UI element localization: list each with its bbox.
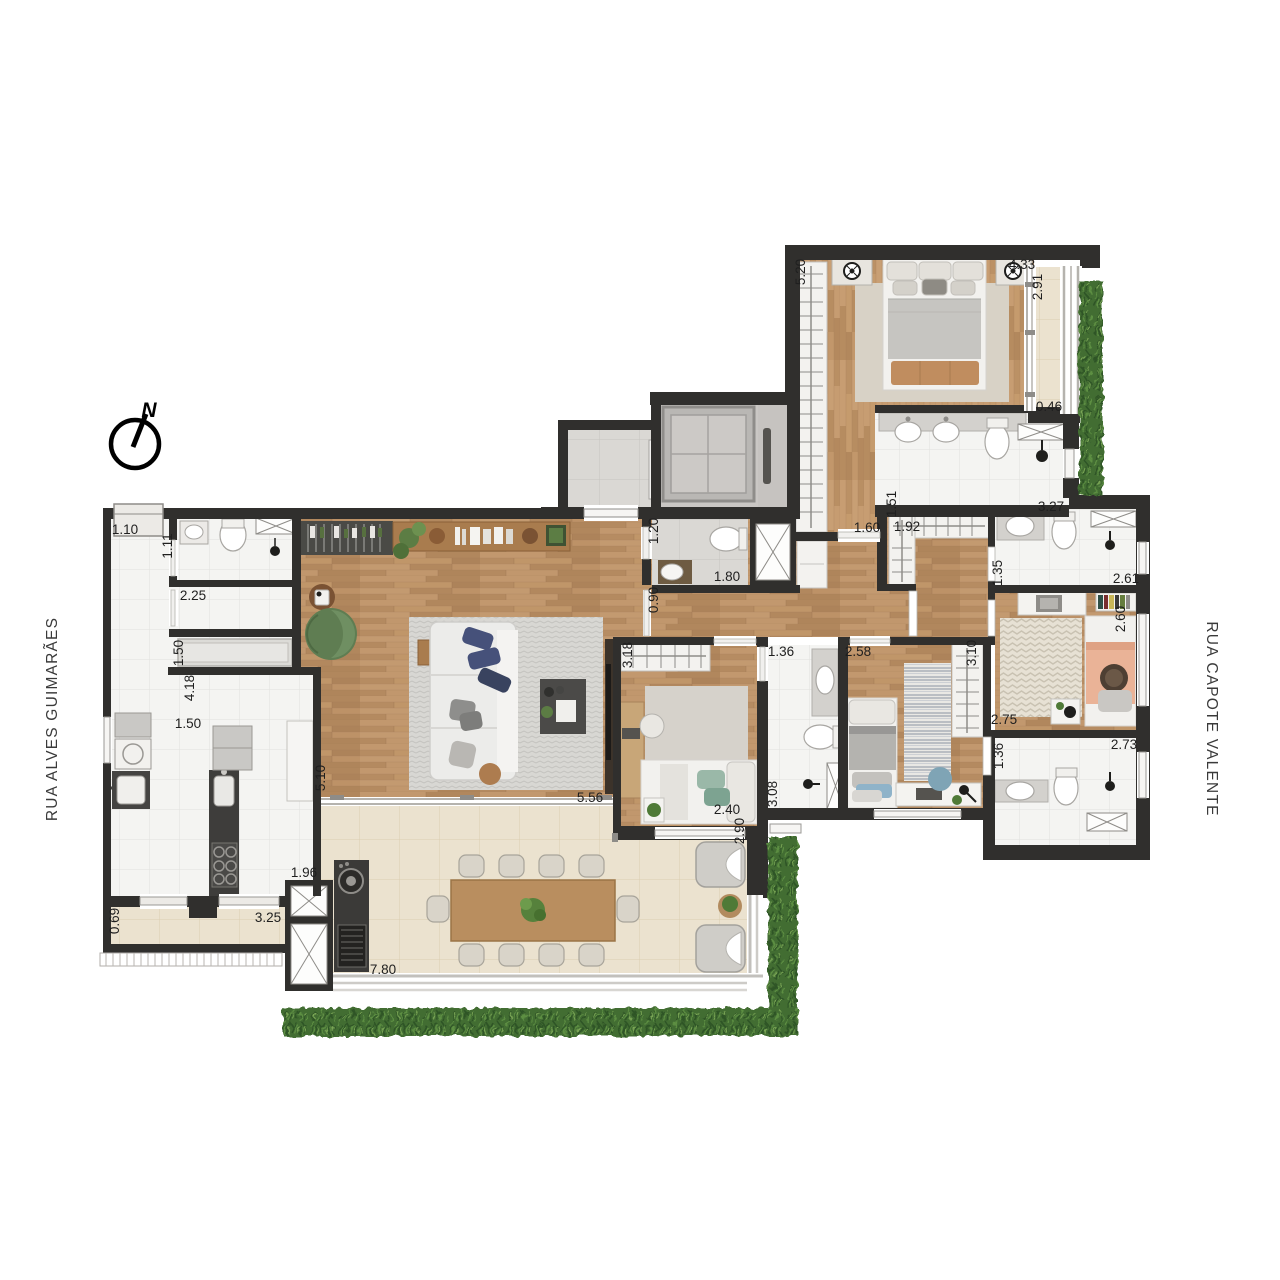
svg-text:1.96: 1.96 (291, 865, 317, 880)
svg-text:5.10: 5.10 (313, 765, 328, 791)
svg-text:2.60: 2.60 (1113, 606, 1128, 632)
svg-text:1.35: 1.35 (990, 560, 1005, 586)
svg-text:1.50: 1.50 (175, 716, 201, 731)
svg-text:2.61: 2.61 (1113, 571, 1139, 586)
svg-text:N: N (141, 399, 157, 422)
svg-text:4.33: 4.33 (1009, 257, 1035, 272)
svg-text:1.10: 1.10 (112, 522, 138, 537)
svg-text:1.36: 1.36 (768, 644, 794, 659)
svg-text:1.11: 1.11 (160, 533, 175, 558)
svg-text:1.60: 1.60 (854, 520, 880, 535)
svg-text:0.69: 0.69 (107, 908, 122, 934)
svg-text:1.50: 1.50 (171, 640, 186, 666)
svg-text:4.18: 4.18 (182, 675, 197, 701)
svg-text:2.91: 2.91 (1030, 274, 1045, 300)
svg-text:2.58: 2.58 (845, 644, 871, 659)
svg-text:2.73: 2.73 (1111, 737, 1137, 752)
svg-text:3.08: 3.08 (765, 781, 780, 807)
svg-text:0.46: 0.46 (1036, 399, 1062, 414)
svg-text:RUA ALVES GUIMARÃES: RUA ALVES GUIMARÃES (44, 617, 61, 821)
svg-text:0.90: 0.90 (646, 587, 661, 613)
svg-text:2.75: 2.75 (991, 712, 1017, 727)
svg-text:5.20: 5.20 (793, 259, 808, 285)
svg-text:1.36: 1.36 (991, 743, 1006, 769)
svg-text:1.92: 1.92 (894, 519, 920, 534)
svg-text:2.90: 2.90 (732, 818, 747, 844)
svg-text:3.18: 3.18 (620, 642, 635, 668)
svg-text:2.25: 2.25 (180, 588, 206, 603)
svg-text:1.20: 1.20 (646, 518, 661, 544)
svg-text:3.27: 3.27 (1038, 499, 1064, 514)
svg-text:3.10: 3.10 (964, 640, 979, 666)
svg-text:2.40: 2.40 (714, 802, 740, 817)
svg-text:3.25: 3.25 (255, 910, 281, 925)
svg-text:5.56: 5.56 (577, 790, 603, 805)
svg-text:1.80: 1.80 (714, 569, 740, 584)
svg-text:1.51: 1.51 (884, 491, 899, 517)
svg-text:RUA CAPOTE VALENTE: RUA CAPOTE VALENTE (1203, 621, 1220, 816)
svg-text:7.80: 7.80 (370, 962, 396, 977)
